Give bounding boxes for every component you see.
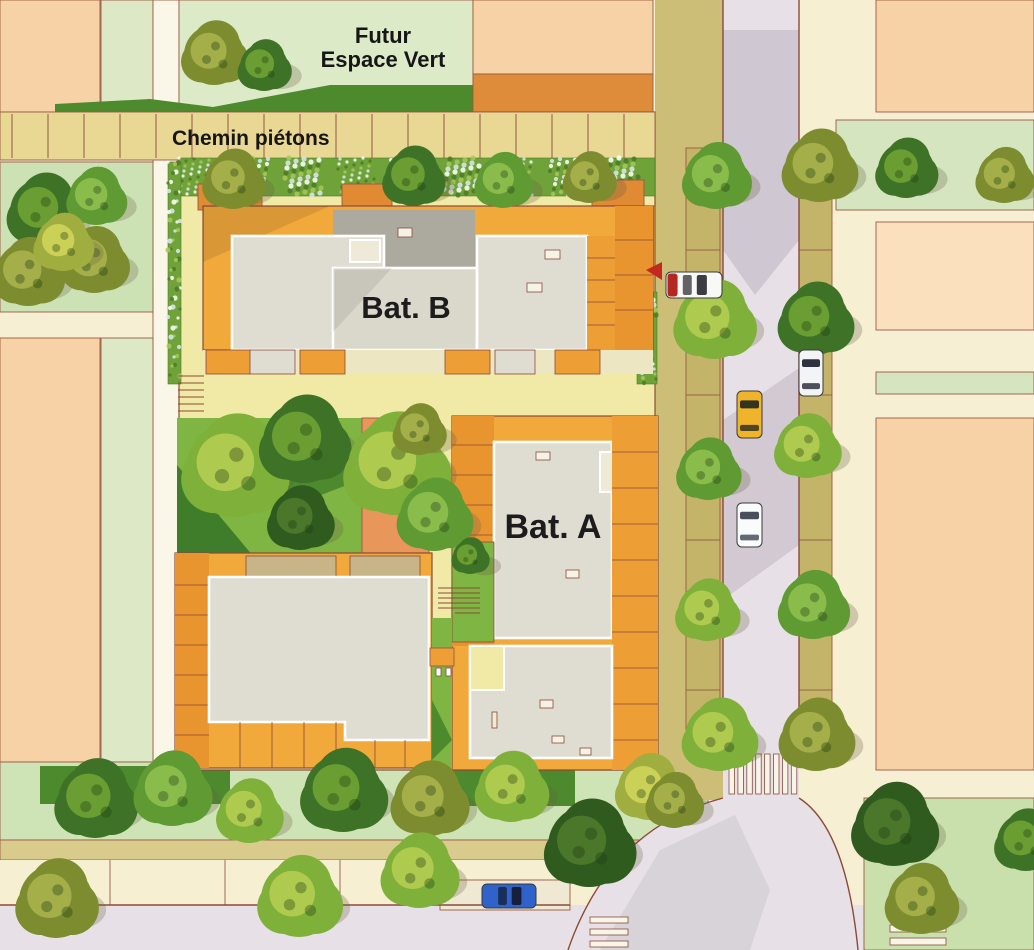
building-c-roof bbox=[209, 577, 429, 740]
site-plan-canvas: Futur Espace Vert Chemin piétons Bat. B … bbox=[0, 0, 1034, 950]
zone-orange-topcenter bbox=[473, 74, 653, 112]
crosswalk bbox=[590, 917, 628, 947]
zone-mint-left bbox=[101, 338, 153, 762]
building-c bbox=[175, 553, 463, 768]
site-plan: Futur Espace Vert Chemin piétons Bat. B … bbox=[0, 0, 1034, 950]
car-parked-blue-car bbox=[482, 884, 536, 908]
zone-peach-right-2 bbox=[876, 418, 1034, 770]
car-white-cabriolet bbox=[799, 350, 823, 396]
building-c-terrace-2 bbox=[350, 556, 420, 578]
roof-vent bbox=[527, 283, 542, 292]
roof-vent bbox=[545, 250, 560, 259]
flower-hedge bbox=[165, 160, 182, 384]
car-white-car bbox=[737, 503, 762, 547]
roof-vent bbox=[552, 736, 564, 743]
zone-peach-topright bbox=[876, 0, 1034, 112]
car-delivery-van bbox=[666, 272, 722, 298]
roof-vent bbox=[580, 748, 591, 755]
building-a-east-band bbox=[612, 416, 658, 770]
zone-peach-left bbox=[0, 338, 100, 762]
building-a bbox=[452, 416, 658, 770]
roof-vent bbox=[398, 228, 412, 237]
building-b-notch bbox=[350, 240, 380, 262]
label-future-green-space-line1: Futur bbox=[355, 23, 412, 48]
building-b-roof-right bbox=[477, 236, 587, 350]
building-a-lower-notch bbox=[470, 646, 504, 690]
zone-green-sliver-right bbox=[876, 372, 1034, 394]
label-building-b: Bat. B bbox=[361, 290, 451, 325]
zone-peach-topleft bbox=[0, 0, 100, 112]
walkway bbox=[430, 648, 454, 666]
label-future-green-space-line2: Espace Vert bbox=[321, 47, 446, 72]
roof-vent bbox=[536, 452, 550, 460]
building-c-terrace-1 bbox=[246, 556, 336, 578]
building-b-balcony-col bbox=[587, 236, 615, 350]
label-building-a: Bat. A bbox=[505, 508, 602, 546]
label-pedestrian-path: Chemin piétons bbox=[172, 127, 330, 150]
building-b-east-band bbox=[615, 206, 653, 350]
car-yellow-car bbox=[737, 391, 762, 438]
zone-peach-topcenter bbox=[473, 0, 653, 74]
roof-vent bbox=[566, 570, 579, 578]
roof-vent bbox=[540, 700, 553, 708]
zone-mint-topleft bbox=[101, 0, 153, 112]
zone-peach-right-1 bbox=[876, 222, 1034, 330]
roof-vent bbox=[492, 712, 497, 728]
